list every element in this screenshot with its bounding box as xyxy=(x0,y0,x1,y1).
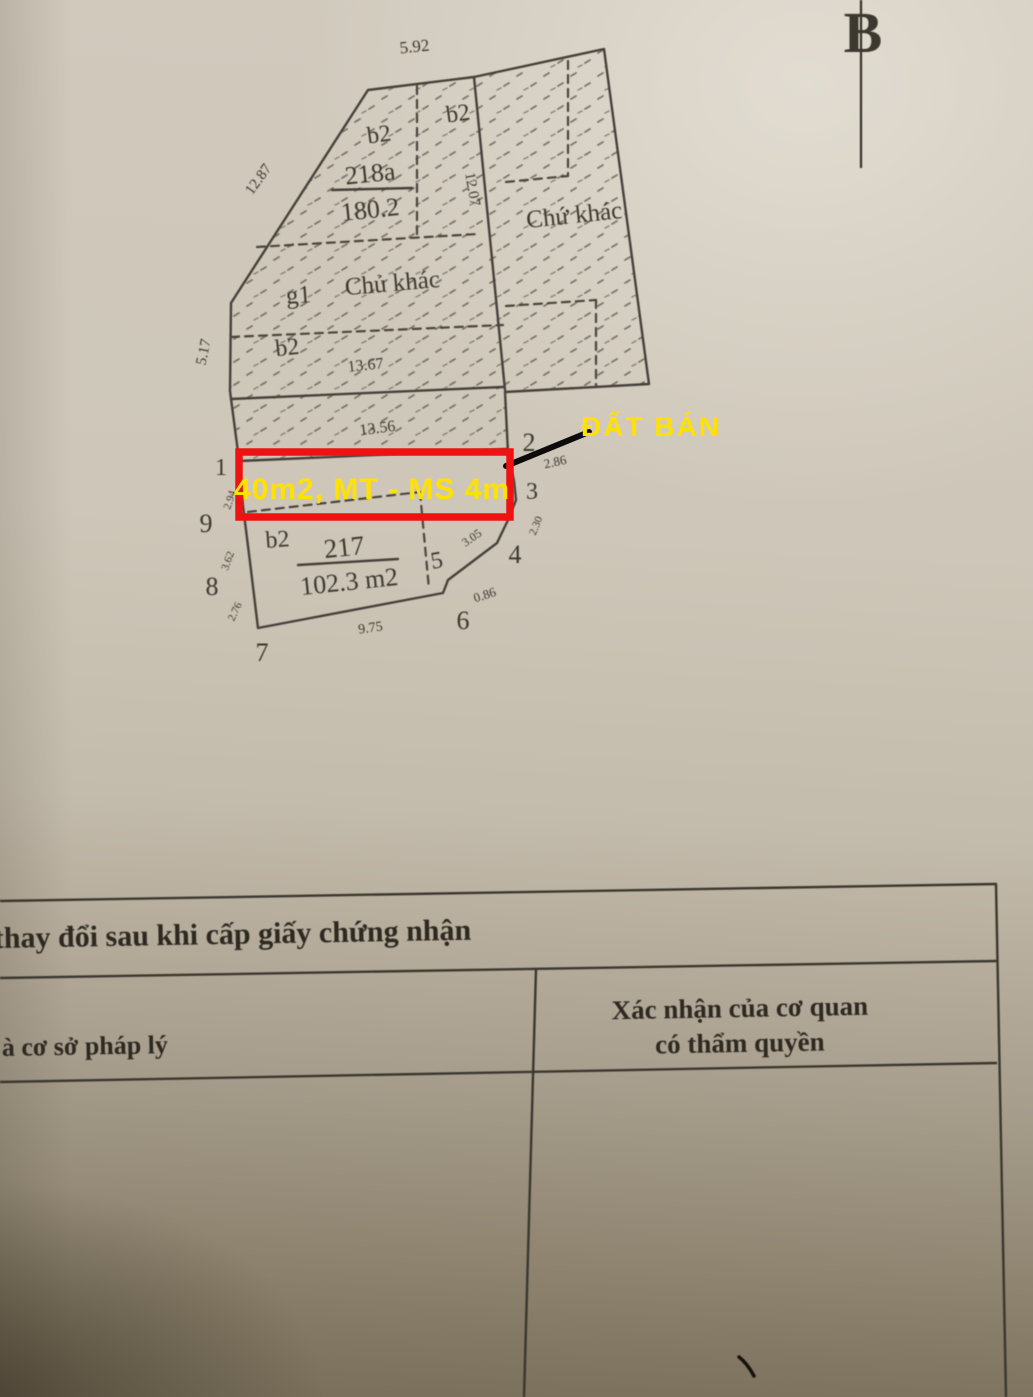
table-left-header: à cơ sở pháp lý xyxy=(2,1030,169,1062)
stippled-area xyxy=(230,49,649,462)
table-header-divider xyxy=(0,961,997,978)
sale-label: ĐẤT BÁN xyxy=(581,411,721,442)
parcel-left-type: b2 xyxy=(274,334,301,362)
highlight-text: 40m2, MT - MS 4m xyxy=(234,473,510,506)
certificate-table: thay đổi sau khi cấp giấy chứng nhận Xác… xyxy=(0,884,1006,1397)
parcel-217-number: 217 xyxy=(322,530,365,564)
vertex-1: 1 xyxy=(215,455,227,481)
parcel-218a-number: 218a xyxy=(343,156,397,190)
dim-2-30: 2.30 xyxy=(527,514,546,537)
table-row-divider xyxy=(0,1063,997,1082)
table-right-header-line2: có thẩm quyền xyxy=(655,1027,825,1060)
vertex-6: 6 xyxy=(457,606,470,635)
vertex-3: 3 xyxy=(526,479,538,505)
dim-0-86: 0.86 xyxy=(471,584,498,605)
table-right-border xyxy=(996,884,1006,1397)
dim-3-05: 3.05 xyxy=(459,526,484,550)
pen-mark xyxy=(739,1357,754,1376)
parcel-top-type: b2 xyxy=(444,100,471,129)
parcel-218a-area: 180.2 xyxy=(340,192,401,227)
dash-217-divider xyxy=(420,492,429,589)
vertex-8: 8 xyxy=(206,572,219,601)
vertex-9: 9 xyxy=(200,509,213,538)
vertex-7: 7 xyxy=(256,638,269,667)
vertex-5: 5 xyxy=(429,547,445,575)
table-top-border xyxy=(0,884,997,901)
dim-bottom: 9.75 xyxy=(357,619,383,637)
dim-top: 5.92 xyxy=(399,36,431,58)
parcel-218a-type: b2 xyxy=(365,121,392,150)
north-label: B xyxy=(844,0,883,65)
dim-2-86: 2.86 xyxy=(542,452,568,472)
north-arrow: B xyxy=(844,0,883,168)
dim-left: 5.17 xyxy=(194,337,215,366)
parcel-217-area: 102.3 m2 xyxy=(299,562,400,601)
document-canvas: B 5.92 12.87 12 xyxy=(0,0,1033,1397)
vertex-4: 4 xyxy=(509,540,522,569)
dim-3-62: 3.62 xyxy=(219,550,237,572)
table-right-header-line1: Xác nhận của cơ quan xyxy=(611,991,868,1025)
photographed-land-document: B 5.92 12.87 12 xyxy=(0,0,1033,1397)
parcel-mid-type: g1 xyxy=(285,281,312,310)
cadastral-map: 5.92 12.87 12.07 5.17 13.67 13.56 9.75 2… xyxy=(194,36,649,667)
scanned-page: B 5.92 12.87 12 xyxy=(0,0,1006,1397)
table-column-divider xyxy=(524,969,536,1397)
dim-2-76: 2.76 xyxy=(226,600,245,623)
table-title: thay đổi sau khi cấp giấy chứng nhận xyxy=(0,914,472,955)
dim-slant: 12.87 xyxy=(242,161,275,198)
parcel-217-type: b2 xyxy=(265,526,291,554)
